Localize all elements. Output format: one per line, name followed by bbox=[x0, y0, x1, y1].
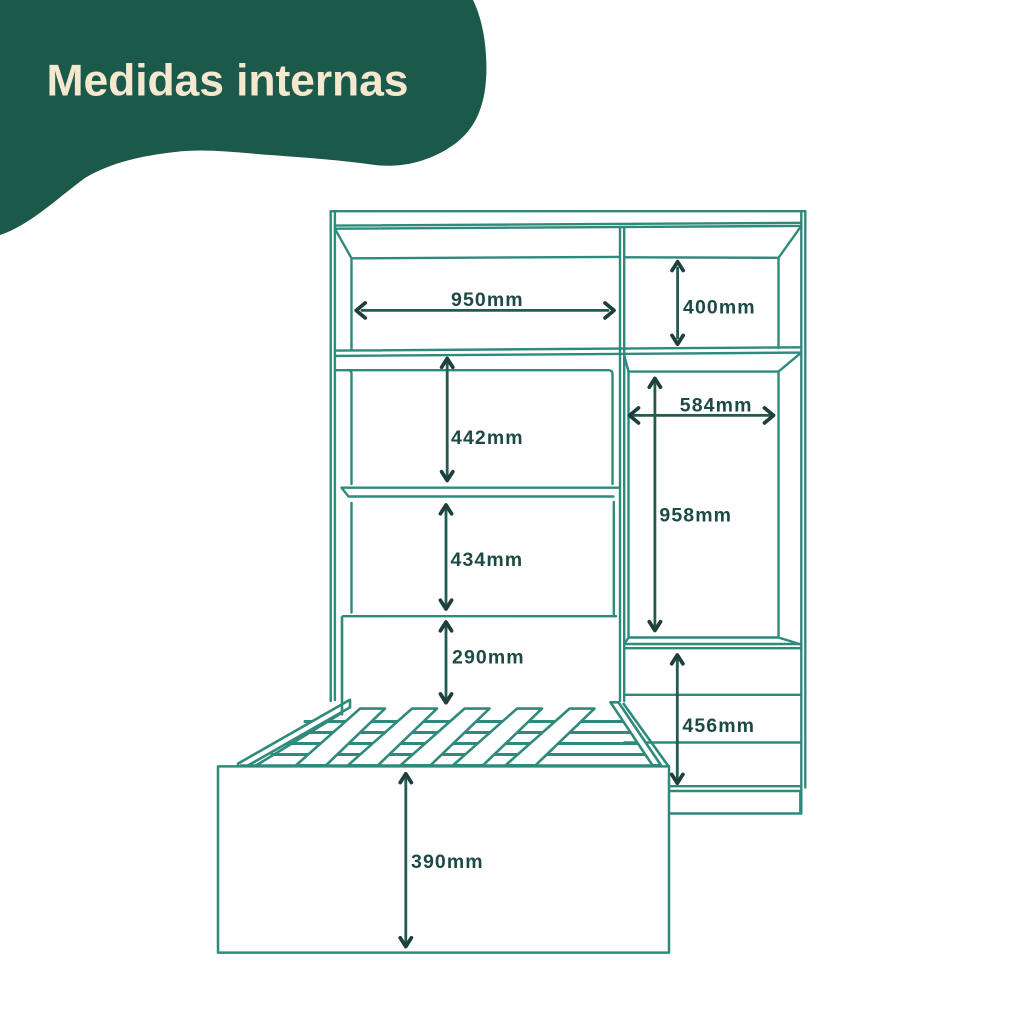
svg-text:434mm: 434mm bbox=[451, 549, 524, 571]
svg-text:950mm: 950mm bbox=[451, 289, 524, 311]
svg-text:390mm: 390mm bbox=[411, 851, 484, 873]
svg-text:442mm: 442mm bbox=[451, 427, 524, 449]
svg-text:584mm: 584mm bbox=[680, 394, 753, 416]
svg-text:456mm: 456mm bbox=[682, 715, 755, 737]
svg-text:400mm: 400mm bbox=[683, 297, 756, 319]
svg-text:958mm: 958mm bbox=[659, 505, 732, 527]
svg-text:Medidas internas: Medidas internas bbox=[47, 57, 409, 106]
svg-text:290mm: 290mm bbox=[452, 647, 525, 669]
